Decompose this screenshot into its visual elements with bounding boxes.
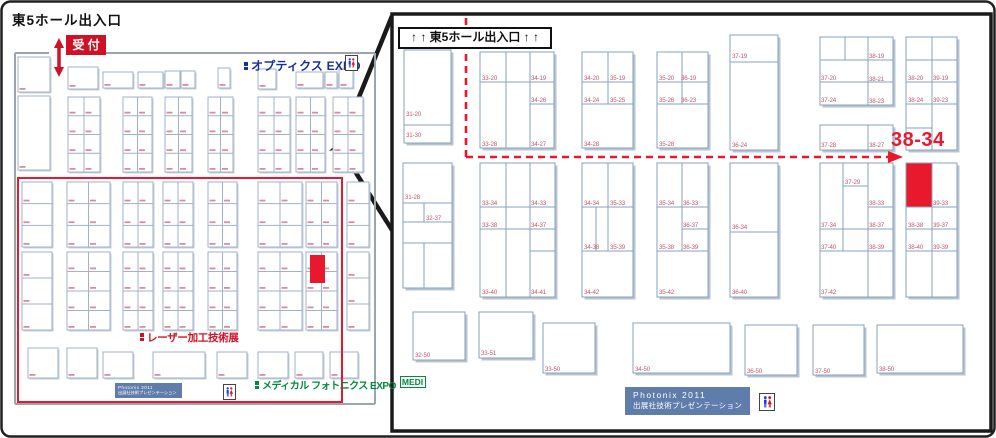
micro-booth-number	[165, 268, 171, 270]
booth-label: 37-29	[845, 179, 861, 186]
micro-booth-number	[224, 221, 230, 223]
micro-booth-number	[180, 168, 186, 170]
booth-rect	[480, 163, 555, 297]
micro-booth-number	[222, 131, 228, 133]
presentation-subtitle: 出展社技術プレゼンテーション	[633, 400, 750, 411]
micro-booth-number	[180, 149, 186, 151]
hall-entrance-banner: ↑ ↑ 東5ホール出入口 ↑ ↑	[398, 27, 552, 49]
micro-booth-number	[140, 84, 146, 86]
micro-booth-number	[222, 149, 228, 151]
booth-label: 37-50	[815, 368, 831, 375]
micro-booth-number	[308, 200, 314, 202]
booth-rect	[403, 163, 452, 288]
micro-booth-number	[165, 307, 171, 309]
expo-logo-icon	[244, 62, 248, 71]
booth-label: 35-33	[610, 200, 626, 207]
restroom-icon	[223, 384, 236, 400]
booth-label: 34-34	[584, 200, 600, 207]
booth-label: 34-33	[531, 200, 547, 207]
micro-booth-number	[282, 307, 288, 309]
micro-booth-number	[90, 307, 96, 309]
micro-booth-number	[125, 287, 131, 289]
micro-booth-number	[282, 287, 288, 289]
booth-rect	[404, 50, 451, 143]
micro-booth-number	[260, 287, 266, 289]
booth-label: 35-26	[659, 97, 675, 104]
micro-booth-number	[260, 112, 266, 114]
mini-presentation-box: Photonix 2011 出展社技術プレゼンテーション	[115, 383, 182, 398]
micro-booth-number	[125, 268, 131, 270]
booth-label: 38-40	[908, 244, 924, 251]
micro-booth-number	[140, 243, 146, 245]
micro-booth-number	[323, 243, 329, 245]
booth-label: 37-28	[821, 142, 837, 149]
micro-booth-number	[139, 149, 145, 151]
micro-booth-number	[308, 326, 314, 328]
micro-booth-number	[260, 149, 266, 151]
reception-arrow-icon	[54, 38, 64, 48]
booth-label: 35-28	[659, 141, 675, 148]
micro-booth-number	[105, 84, 111, 86]
presentation-title: Photonix 2011	[633, 390, 750, 400]
micro-booth-number	[224, 268, 230, 270]
booth-label: 34-37	[531, 222, 547, 229]
booth-label: 35-38	[659, 244, 675, 251]
micro-booth-number	[276, 168, 282, 170]
booth-label: 39-39	[933, 244, 949, 251]
micro-booth-number	[20, 88, 26, 90]
micro-booth-number	[140, 268, 146, 270]
booth-label: 36-39	[683, 244, 699, 251]
micro-booth-number	[349, 243, 355, 245]
medical-expo-label: メディカル フォトニクス EXPOMEDI	[255, 376, 426, 392]
micro-booth-number	[210, 112, 216, 114]
micro-booth-number	[308, 221, 314, 223]
booth-rect	[22, 252, 52, 330]
micro-booth-number	[312, 112, 318, 114]
highlighted-booth-mini	[310, 255, 325, 283]
micro-booth-number	[341, 84, 347, 86]
booth-label: 33-38	[482, 222, 498, 229]
micro-booth-number	[350, 168, 356, 170]
micro-booth-number	[69, 326, 75, 328]
booth-label: 32-37	[426, 215, 442, 222]
booth-label: 32-50	[415, 352, 431, 359]
booth-label: 38-27	[869, 142, 885, 149]
micro-booth-number	[350, 112, 356, 114]
micro-booth-number	[69, 268, 75, 270]
booth-label: 33-40	[482, 289, 498, 296]
booth-label: 37-40	[821, 244, 837, 251]
micro-booth-number	[323, 221, 329, 223]
micro-booth-number	[224, 307, 230, 309]
optics-expo-label: オプティクス EXPO	[244, 57, 361, 74]
booth-label: 34-19	[531, 75, 547, 82]
booth-label: 34-38	[584, 244, 600, 251]
booth-label: 34-50	[635, 366, 651, 373]
reception-arrow-icon	[54, 67, 64, 77]
booth-label: 33-20	[482, 75, 498, 82]
micro-booth-number	[282, 268, 288, 270]
reception-badge: 受 付	[66, 35, 106, 55]
micro-booth-number	[210, 131, 216, 133]
micro-booth-number	[139, 112, 145, 114]
exhibition-floor-map: 31-2031-3033-2034-1934-2633-2834-2734-20…	[0, 0, 996, 438]
micro-booth-number	[210, 200, 216, 202]
booth-label: 35-42	[659, 289, 675, 296]
micro-booth-number	[224, 326, 230, 328]
micro-booth-number	[323, 287, 329, 289]
micro-booth-number	[90, 326, 96, 328]
booth-label: 38-37	[869, 222, 885, 229]
presentation-subtitle: 出展社技術プレゼンテーション	[118, 390, 182, 395]
micro-booth-number	[312, 149, 318, 151]
micro-booth-number	[210, 287, 216, 289]
booth-label: 31-30	[406, 132, 422, 139]
booth-label: 37-19	[732, 53, 748, 60]
micro-booth-number	[323, 307, 329, 309]
micro-booth-number	[30, 374, 36, 376]
booth-label: 35-39	[610, 244, 626, 251]
micro-booth-number	[180, 112, 186, 114]
featured-booth-number: 38-34	[891, 129, 945, 152]
micro-booth-number	[180, 131, 186, 133]
restroom-icon	[759, 393, 775, 411]
micro-booth-number	[210, 307, 216, 309]
micro-booth-number	[165, 200, 171, 202]
micro-booth-number	[86, 131, 92, 133]
micro-booth-number	[69, 200, 75, 202]
restroom-glyph	[225, 386, 234, 398]
micro-booth-number	[220, 84, 226, 86]
booth-rect	[820, 37, 893, 105]
micro-booth-number	[86, 149, 92, 151]
micro-booth-number	[69, 243, 75, 245]
booth-label: 35-25	[610, 97, 626, 104]
booth-label: 35-19	[610, 75, 626, 82]
micro-booth-number	[282, 243, 288, 245]
laser-expo-text: レーザー加工技術展	[147, 332, 239, 344]
micro-booth-number	[125, 112, 131, 114]
micro-booth-number	[125, 168, 131, 170]
micro-booth-number	[349, 274, 355, 276]
micro-booth-number	[24, 243, 30, 245]
micro-booth-number	[180, 200, 186, 202]
booth-label: 37-42	[821, 289, 837, 296]
booth-rect	[347, 252, 369, 330]
micro-booth-number	[260, 221, 266, 223]
micro-booth-number	[86, 168, 92, 170]
micro-booth-number	[90, 287, 96, 289]
micro-booth-number	[210, 243, 216, 245]
micro-booth-number	[224, 287, 230, 289]
booth-label: 36-19	[681, 75, 697, 82]
micro-booth-number	[210, 326, 216, 328]
micro-booth-number	[167, 112, 173, 114]
micro-booth-number	[349, 221, 355, 223]
micro-booth-number	[24, 221, 30, 223]
booth-label: 34-26	[531, 97, 547, 104]
micro-booth-number	[125, 221, 131, 223]
micro-booth-number	[335, 149, 341, 151]
micro-booth-number	[69, 287, 75, 289]
micro-booth-number	[24, 300, 30, 302]
medical-expo-text: メディカル フォトニクス EXPO	[262, 381, 396, 392]
micro-booth-number	[298, 149, 304, 151]
micro-booth-number	[140, 200, 146, 202]
booth-label: 37-34	[821, 222, 837, 229]
booth-label: 39-33	[933, 200, 949, 207]
micro-booth-number	[219, 374, 225, 376]
micro-booth-number	[165, 243, 171, 245]
medical-expo-badge: MEDI	[400, 376, 426, 388]
micro-booth-number	[298, 84, 304, 86]
micro-booth-number	[222, 112, 228, 114]
micro-booth-number	[140, 307, 146, 309]
micro-booth-number	[70, 85, 76, 87]
micro-booth-number	[183, 84, 189, 86]
micro-booth-number	[125, 243, 131, 245]
booth-label: 33-28	[482, 141, 498, 148]
booth-label: 34-41	[531, 289, 547, 296]
micro-booth-number	[125, 326, 131, 328]
booth-label: 36-37	[683, 222, 699, 229]
micro-booth-number	[260, 131, 266, 133]
booth-label: 38-20	[908, 75, 924, 82]
micro-booth-number	[165, 287, 171, 289]
micro-booth-number	[180, 221, 186, 223]
booth-rect	[18, 57, 50, 92]
booth-label: 38-19	[869, 53, 885, 60]
booth-rect	[347, 182, 369, 247]
booth-label: 38-23	[869, 98, 885, 105]
micro-booth-number	[276, 131, 282, 133]
micro-booth-number	[140, 326, 146, 328]
booth-label: 37-20	[821, 75, 837, 82]
micro-booth-number	[335, 112, 341, 114]
micro-booth-number	[139, 168, 145, 170]
micro-booth-number	[349, 300, 355, 302]
micro-booth-number	[90, 243, 96, 245]
laser-expo-label: レーザー加工技術展	[140, 330, 239, 345]
main-presentation-box: Photonix 2011 出展社技術プレゼンテーション	[625, 387, 750, 415]
micro-booth-number	[282, 326, 288, 328]
booth-label: 36-33	[683, 200, 699, 207]
micro-booth-number	[125, 149, 131, 151]
micro-booth-number	[24, 326, 30, 328]
micro-booth-number	[260, 307, 266, 309]
micro-booth-number	[323, 326, 329, 328]
micro-booth-number	[20, 166, 26, 168]
micro-booth-number	[276, 149, 282, 151]
micro-booth-number	[180, 243, 186, 245]
booth-label: 39-23	[933, 97, 949, 104]
micro-booth-number	[260, 326, 266, 328]
micro-booth-number	[335, 131, 341, 133]
micro-booth-number	[308, 307, 314, 309]
booth-label: 36-24	[732, 142, 748, 149]
micro-booth-number	[70, 149, 76, 151]
booth-label: 31-28	[405, 194, 421, 201]
micro-booth-number	[224, 200, 230, 202]
restroom-glyph	[347, 57, 356, 69]
micro-booth-number	[308, 287, 314, 289]
micro-booth-number	[298, 112, 304, 114]
micro-booth-number	[349, 326, 355, 328]
booth-label: 38-24	[908, 97, 924, 104]
highlighted-booth	[907, 164, 932, 207]
micro-booth-number	[167, 131, 173, 133]
micro-booth-number	[125, 131, 131, 133]
micro-booth-number	[180, 268, 186, 270]
micro-booth-number	[24, 200, 30, 202]
micro-booth-number	[260, 85, 266, 87]
micro-booth-number	[139, 131, 145, 133]
micro-booth-number	[224, 243, 230, 245]
micro-booth-number	[165, 326, 171, 328]
booth-label: 39-37	[933, 222, 949, 229]
booth-label: 35-34	[659, 200, 675, 207]
micro-booth-number	[210, 221, 216, 223]
booth-label: 39-19	[933, 75, 949, 82]
micro-booth-number	[276, 112, 282, 114]
restroom-icon	[345, 55, 358, 71]
booth-label: 36-50	[747, 368, 763, 375]
micro-booth-number	[260, 200, 266, 202]
micro-booth-number	[210, 149, 216, 151]
booth-label: 36-23	[681, 97, 697, 104]
micro-booth-number	[210, 168, 216, 170]
booth-label: 36-40	[732, 289, 748, 296]
micro-booth-number	[308, 243, 314, 245]
booth-label: 37-24	[821, 97, 837, 104]
booth-label: 38-33	[869, 200, 885, 207]
booth-rect	[67, 348, 97, 378]
micro-booth-number	[282, 200, 288, 202]
micro-booth-number	[260, 168, 266, 170]
micro-booth-number	[180, 326, 186, 328]
booth-rect	[153, 352, 205, 378]
micro-booth-number	[140, 221, 146, 223]
booth-label: 33-34	[482, 200, 498, 207]
expo-logo-icon	[255, 381, 259, 390]
micro-booth-number	[165, 221, 171, 223]
micro-booth-number	[327, 84, 333, 86]
micro-booth-number	[312, 168, 318, 170]
booth-label: 34-28	[584, 141, 600, 148]
floor-map-canvas: 31-2031-3033-2034-1934-2633-2834-2734-20…	[0, 0, 996, 438]
booth-label: 34-24	[584, 97, 600, 104]
booth-label: 38-38	[908, 222, 924, 229]
micro-booth-number	[349, 200, 355, 202]
micro-booth-number	[167, 149, 173, 151]
restroom-glyph	[762, 395, 773, 409]
micro-booth-number	[90, 268, 96, 270]
booth-rect	[18, 96, 50, 170]
micro-booth-number	[210, 268, 216, 270]
hall-entrance-title: 東5ホール出入口	[12, 9, 122, 29]
micro-booth-number	[180, 307, 186, 309]
booth-label: 38-21	[869, 76, 885, 83]
booth-label: 35-20	[659, 75, 675, 82]
micro-booth-number	[298, 131, 304, 133]
micro-booth-number	[69, 307, 75, 309]
micro-booth-number	[69, 221, 75, 223]
booth-rect	[22, 182, 52, 247]
micro-booth-number	[312, 131, 318, 133]
micro-booth-number	[24, 274, 30, 276]
micro-booth-number	[155, 374, 161, 376]
micro-booth-number	[323, 200, 329, 202]
booth-label: 34-20	[584, 75, 600, 82]
micro-booth-number	[70, 112, 76, 114]
micro-booth-number	[260, 243, 266, 245]
micro-booth-number	[105, 374, 111, 376]
booth-label: 34-27	[531, 141, 547, 148]
micro-booth-number	[140, 287, 146, 289]
micro-booth-number	[167, 168, 173, 170]
booth-label: 33-50	[545, 366, 561, 373]
micro-booth-number	[70, 168, 76, 170]
micro-booth-number	[90, 200, 96, 202]
micro-booth-number	[125, 307, 131, 309]
micro-booth-number	[90, 221, 96, 223]
micro-booth-number	[222, 168, 228, 170]
micro-booth-number	[282, 221, 288, 223]
booth-label: 38-39	[869, 244, 885, 251]
micro-booth-number	[298, 168, 304, 170]
micro-booth-number	[350, 131, 356, 133]
micro-booth-number	[86, 112, 92, 114]
booth-label: 33-51	[481, 350, 497, 357]
booth-label: 31-20	[406, 111, 422, 118]
micro-booth-number	[69, 374, 75, 376]
micro-booth-number	[125, 200, 131, 202]
expo-logo-icon	[140, 333, 144, 342]
micro-booth-number	[335, 168, 341, 170]
micro-booth-number	[70, 131, 76, 133]
booth-label: 38-50	[879, 366, 895, 373]
booth-label: 34-42	[584, 289, 600, 296]
micro-booth-number	[260, 268, 266, 270]
booth-label: 36-34	[732, 224, 748, 231]
micro-booth-number	[167, 84, 173, 86]
micro-booth-number	[180, 287, 186, 289]
booth-rect	[28, 348, 58, 378]
micro-booth-number	[350, 149, 356, 151]
